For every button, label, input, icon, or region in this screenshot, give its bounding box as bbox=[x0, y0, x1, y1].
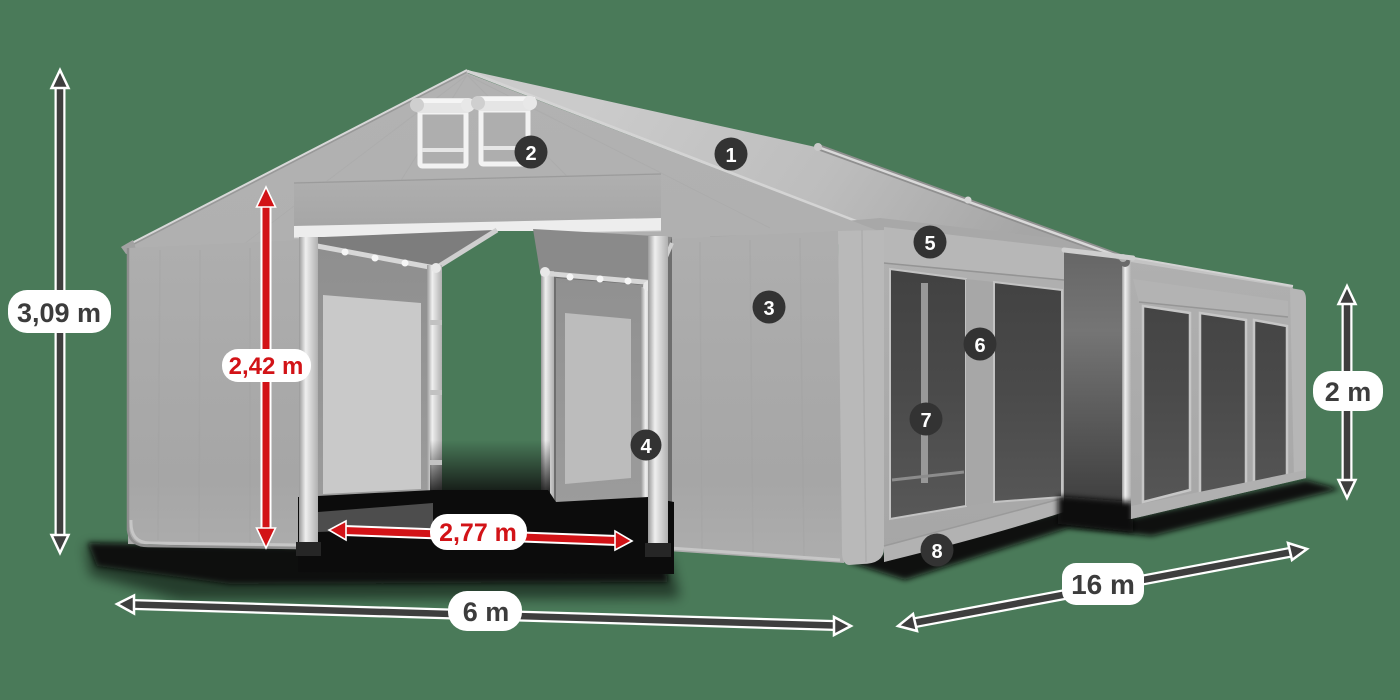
svg-text:5: 5 bbox=[924, 233, 935, 255]
svg-text:1: 1 bbox=[725, 145, 736, 167]
svg-text:6 m: 6 m bbox=[463, 597, 510, 627]
svg-text:7: 7 bbox=[920, 410, 931, 432]
svg-text:16 m: 16 m bbox=[1071, 569, 1135, 600]
svg-text:6: 6 bbox=[974, 335, 985, 357]
svg-text:4: 4 bbox=[640, 436, 652, 458]
svg-text:8: 8 bbox=[931, 541, 942, 563]
svg-text:2,42 m: 2,42 m bbox=[229, 353, 304, 380]
svg-text:2,77 m: 2,77 m bbox=[439, 519, 517, 547]
svg-text:3: 3 bbox=[763, 298, 774, 320]
svg-text:2 m: 2 m bbox=[1325, 377, 1372, 407]
svg-text:3,09 m: 3,09 m bbox=[17, 298, 101, 328]
svg-text:2: 2 bbox=[525, 143, 536, 165]
